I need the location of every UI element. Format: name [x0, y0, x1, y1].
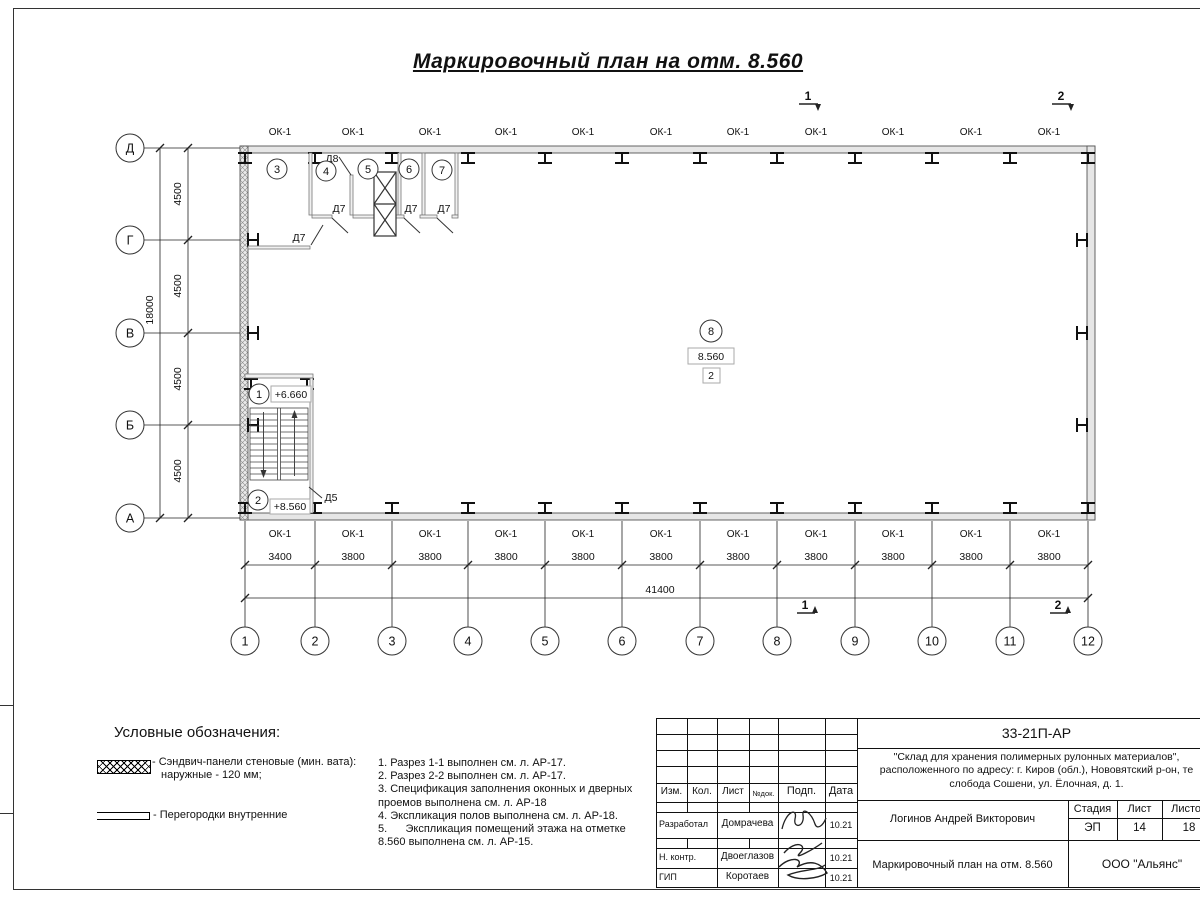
- note-1: 1. Разрез 1-1 выполнен см. л. АР-17.: [378, 757, 633, 770]
- axis-label: В: [126, 327, 134, 341]
- door-d7-label: Д7: [405, 203, 418, 215]
- axis-label: 10: [925, 635, 939, 649]
- axis-label: 12: [1081, 635, 1095, 649]
- note-5: 5. Экспликация помещений этажа на отметк…: [378, 823, 633, 849]
- window-mark: ОК-1: [269, 127, 292, 138]
- bay-dim: 3800: [804, 551, 828, 563]
- axis-label: Д: [126, 142, 135, 156]
- tb-stage-label: Стадия: [1068, 803, 1117, 815]
- room-8: 8: [708, 326, 714, 338]
- window-mark: ОК-1: [572, 529, 595, 540]
- window-mark: ОК-1: [419, 529, 442, 540]
- room-4: 4: [323, 166, 329, 178]
- stair-main-level: +8.560: [274, 501, 307, 513]
- tb-sheets-label: Листов: [1162, 803, 1200, 815]
- axis-circles-left: Д Г В Б А: [116, 134, 144, 532]
- stair-upper-level: +6.660: [275, 389, 308, 401]
- tb-role-ncontrol: Н. контр.: [659, 852, 696, 862]
- window-labels-bottom: ОК-1 ОК-1 ОК-1 ОК-1 ОК-1 ОК-1 ОК-1 ОК-1 …: [269, 529, 1061, 540]
- tb-client: Логинов Андрей Викторович: [857, 813, 1068, 825]
- axis-label: А: [126, 512, 135, 526]
- window-mark: ОК-1: [960, 529, 983, 540]
- left-dimensions: [144, 144, 240, 522]
- door-d5-label: Д5: [325, 492, 338, 504]
- tb-drawing-title: Маркировочный план на отм. 8.560: [857, 859, 1068, 871]
- window-mark: ОК-1: [805, 529, 828, 540]
- zone-mark: 2: [708, 370, 714, 382]
- title-block: Изм. Кол. Лист №док. Подп. Дата Разработ…: [656, 718, 1200, 888]
- legend-item1-line2: наружные - 120 мм;: [161, 769, 262, 781]
- door-d7-label: Д7: [333, 203, 346, 215]
- window-mark: ОК-1: [882, 127, 905, 138]
- window-mark: ОК-1: [727, 529, 750, 540]
- tb-doc-code: 33-21П-АР: [857, 725, 1200, 741]
- window-mark: ОК-1: [882, 529, 905, 540]
- left-dimension-texts: 4500 4500 4500 4500 18000: [144, 182, 184, 483]
- tb-company: ООО "Альянс": [1068, 857, 1200, 871]
- window-mark: ОК-1: [269, 529, 292, 540]
- total-width-dim: 41400: [645, 584, 674, 596]
- row-dim: 4500: [172, 459, 184, 483]
- axis-label: 1: [242, 635, 249, 649]
- room-3: 3: [274, 164, 280, 176]
- axis-label: 7: [697, 635, 704, 649]
- room-6: 6: [406, 164, 412, 176]
- window-mark: ОК-1: [650, 529, 673, 540]
- partitions: [245, 153, 458, 513]
- window-mark: ОК-1: [960, 127, 983, 138]
- room-2: 2: [255, 495, 261, 507]
- bay-dim: 3800: [959, 551, 983, 563]
- tb-stage-value: ЭП: [1068, 822, 1117, 834]
- axis-label: 3: [389, 635, 396, 649]
- axis-label: 9: [852, 635, 859, 649]
- notes-block: 1. Разрез 1-1 выполнен см. л. АР-17. 2. …: [378, 757, 633, 849]
- signature-developer: [782, 811, 826, 829]
- bay-dim: 3800: [494, 551, 518, 563]
- bay-dim: 3800: [649, 551, 673, 563]
- room-1: 1: [256, 389, 262, 401]
- section-2-top: 2: [1058, 89, 1065, 103]
- row-dim: 4500: [172, 367, 184, 391]
- tb-name-gip: Коротаев: [717, 871, 778, 882]
- tb-name-developer: Домрачева: [717, 818, 778, 829]
- door-d7-label: Д7: [438, 203, 451, 215]
- section-2-bottom: 2: [1055, 598, 1062, 612]
- window-mark: ОК-1: [727, 127, 750, 138]
- tb-header-ndoc: №док.: [749, 789, 778, 798]
- tb-sheet-label: Лист: [1117, 803, 1162, 815]
- window-mark: ОК-1: [805, 127, 828, 138]
- window-mark: ОК-1: [1038, 127, 1061, 138]
- partition-symbol: [97, 812, 150, 820]
- bay-dim: 3800: [418, 551, 442, 563]
- window-mark: ОК-1: [419, 127, 442, 138]
- axis-label: Г: [127, 234, 134, 248]
- note-4: 4. Экспликация полов выполнена см. л. АР…: [378, 810, 633, 823]
- window-labels-top: ОК-1 ОК-1 ОК-1 ОК-1 ОК-1 ОК-1 ОК-1 ОК-1 …: [269, 127, 1061, 138]
- floor-level: 8.560: [698, 351, 724, 363]
- tb-role-developer: Разработал: [659, 819, 708, 829]
- tb-project-line2: расположенного по адресу: г. Киров (обл.…: [857, 764, 1200, 776]
- columns: [238, 153, 1095, 513]
- legend-item2: - Перегородки внутренние: [153, 809, 287, 821]
- bay-dim: 3400: [268, 551, 292, 563]
- room-7: 7: [439, 165, 445, 177]
- axis-label: 11: [1004, 635, 1017, 649]
- note-3: 3. Спецификация заполнения оконных и две…: [378, 783, 633, 809]
- bay-dim: 3800: [341, 551, 365, 563]
- axis-label: 6: [619, 635, 626, 649]
- row-dim: 4500: [172, 182, 184, 206]
- total-height-dim: 18000: [144, 295, 156, 324]
- legend-item1-line1: - Сэндвич-панели стеновые (мин. вата):: [152, 756, 356, 768]
- tb-header-podp: Подп.: [778, 785, 825, 797]
- axis-label: 5: [542, 635, 549, 649]
- row-dim: 4500: [172, 274, 184, 298]
- section-1-top: 1: [805, 89, 812, 103]
- tb-header-kol: Кол.: [687, 786, 717, 797]
- section-marks: 1 2 1 2: [797, 89, 1074, 613]
- bay-dim: 3800: [571, 551, 595, 563]
- axis-label: Б: [126, 419, 134, 433]
- window-mark: ОК-1: [495, 127, 518, 138]
- axis-label: 4: [465, 635, 472, 649]
- section-1-bottom: 1: [802, 598, 809, 612]
- legend-heading: Условные обозначения:: [114, 724, 280, 741]
- tb-header-data: Дата: [825, 785, 857, 797]
- window-mark: ОК-1: [342, 127, 365, 138]
- window-mark: ОК-1: [650, 127, 673, 138]
- signature-approvers: [779, 843, 827, 879]
- bottom-dimension-texts: 3400 3800 3800 3800 3800 3800 3800 3800 …: [268, 551, 1061, 596]
- bay-dim: 3800: [726, 551, 750, 563]
- tb-name-ncontrol: Двоеглазов: [717, 851, 778, 862]
- tb-header-list: Лист: [717, 786, 749, 797]
- note-2: 2. Разрез 2-2 выполнен см. л. АР-17.: [378, 770, 633, 783]
- tb-sheet-value: 14: [1117, 822, 1162, 834]
- sandwich-panel-symbol: [97, 760, 151, 774]
- axis-circles-bottom: 1 2 3 4 5 6 7 8 9 10 11 12: [231, 627, 1102, 655]
- bay-dim: 3800: [1037, 551, 1061, 563]
- window-mark: ОК-1: [495, 529, 518, 540]
- window-mark: ОК-1: [342, 529, 365, 540]
- door-labels: Д7 Д7 Д7 Д7 Д8 Д5: [293, 153, 451, 504]
- shaft: [374, 172, 396, 236]
- axis-label: 8: [774, 635, 781, 649]
- tb-project-line1: "Склад для хранения полимерных рулонных …: [857, 751, 1200, 763]
- drawing-sheet: Маркировочный план на отм. 8.560: [0, 0, 1200, 900]
- tb-role-gip: ГИП: [659, 872, 677, 882]
- tb-project-line3: слобода Сошени, ул. Ёлочная, д. 1.: [857, 778, 1200, 790]
- axis-label: 2: [312, 635, 319, 649]
- signatures: [776, 803, 831, 883]
- exterior-walls: [240, 146, 1095, 520]
- room-5: 5: [365, 164, 371, 176]
- window-mark: ОК-1: [572, 127, 595, 138]
- bay-dim: 3800: [881, 551, 905, 563]
- door-d7-label: Д7: [293, 232, 306, 244]
- room-labels: 3 4 5 6 7 8 8.560 2 1 +6.660 2 +8.560: [248, 159, 734, 514]
- tb-sheets-value: 18: [1162, 822, 1200, 834]
- tb-header-izm: Изм.: [656, 786, 687, 797]
- window-mark: ОК-1: [1038, 529, 1061, 540]
